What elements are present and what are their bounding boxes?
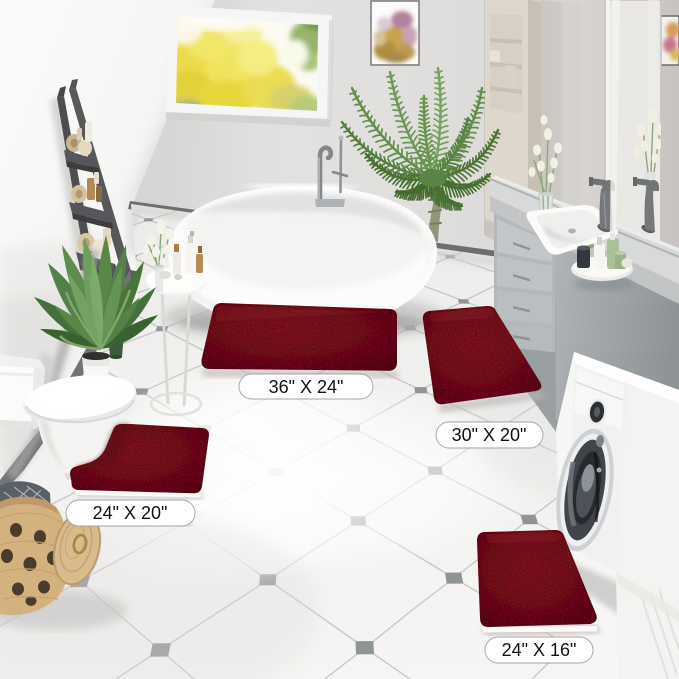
svg-text:24" X 20": 24" X 20"	[93, 503, 168, 523]
svg-text:24" X 16": 24" X 16"	[502, 640, 577, 660]
svg-text:30" X 20": 30" X 20"	[452, 425, 527, 445]
svg-text:36" X 24": 36" X 24"	[269, 377, 344, 397]
